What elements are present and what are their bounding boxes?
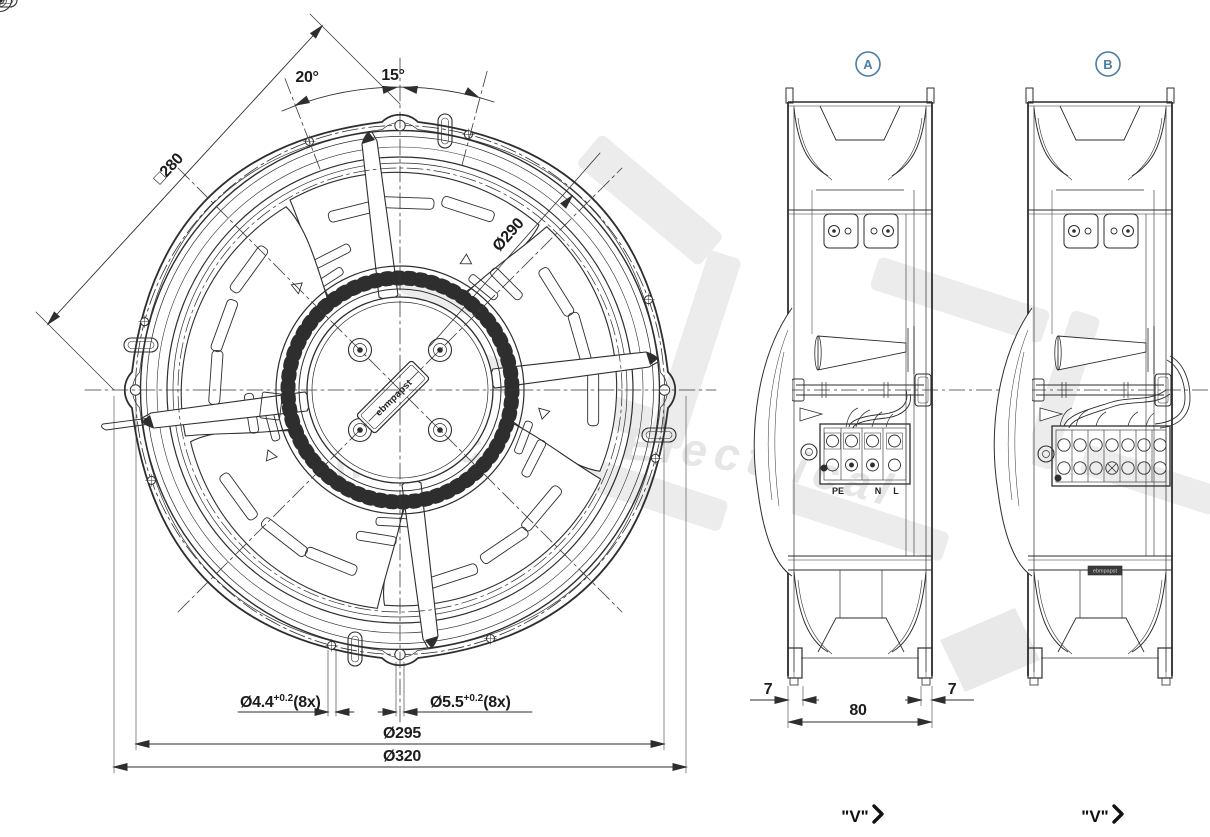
dim-outer-label: Ø320 (383, 748, 421, 765)
dim-width-label: 80 (849, 702, 867, 719)
drawing-svg: Mechanical & Electrical (0, 0, 1210, 837)
fan-dimension-drawing: Mechanical & Electrical (0, 0, 1210, 837)
dim-bolt-circle-label: Ø295 (383, 725, 421, 742)
view-b-label: B (1103, 57, 1112, 72)
terminal-label-l: L (893, 486, 899, 496)
angle-left-label: 20° (295, 69, 318, 86)
terminal-label-n: N (875, 486, 882, 496)
view-a-label: A (863, 57, 873, 72)
view-a-marker: A (856, 52, 880, 76)
view-direction-a: "V" (841, 806, 882, 826)
terminal-label-pe: PE (832, 486, 844, 496)
side-view-a: A PE (750, 52, 974, 826)
side-a-dimensions: 7 7 80 (750, 681, 974, 728)
dim-foot-left-label: 7 (764, 681, 773, 698)
chevron-right-icon (874, 806, 882, 822)
nameplate-b-text: ebmpapst (1093, 569, 1118, 575)
chevron-right-icon (1114, 806, 1122, 822)
view-b-marker: B (1096, 52, 1120, 76)
view-dir-a-label: "V" (841, 807, 868, 826)
dim-foot-right-label: 7 (948, 681, 957, 698)
view-direction-b: "V" (1081, 806, 1122, 826)
angle-right-label: 15° (381, 67, 404, 84)
housing-profile-b (994, 88, 1174, 685)
hole-large-label: Ø5.5+0.2(8x) (430, 693, 511, 711)
dim-square-label: □280 (150, 150, 187, 188)
view-dir-b-label: "V" (1081, 807, 1108, 826)
front-view: ebmpapst □280 (0, 0, 716, 773)
housing-profile-a (754, 88, 934, 685)
hole-small-label: Ø4.4+0.2(8x) (240, 693, 321, 711)
dim-hole-large: Ø5.5+0.2(8x) (378, 662, 532, 716)
angle-ext-right (462, 68, 488, 165)
side-view-b: B (994, 52, 1190, 826)
dim-angles: 20° 15° (282, 67, 494, 111)
dim-hole-small: Ø4.4+0.2(8x) (238, 650, 354, 716)
nameplate-b: ebmpapst (1088, 566, 1122, 575)
